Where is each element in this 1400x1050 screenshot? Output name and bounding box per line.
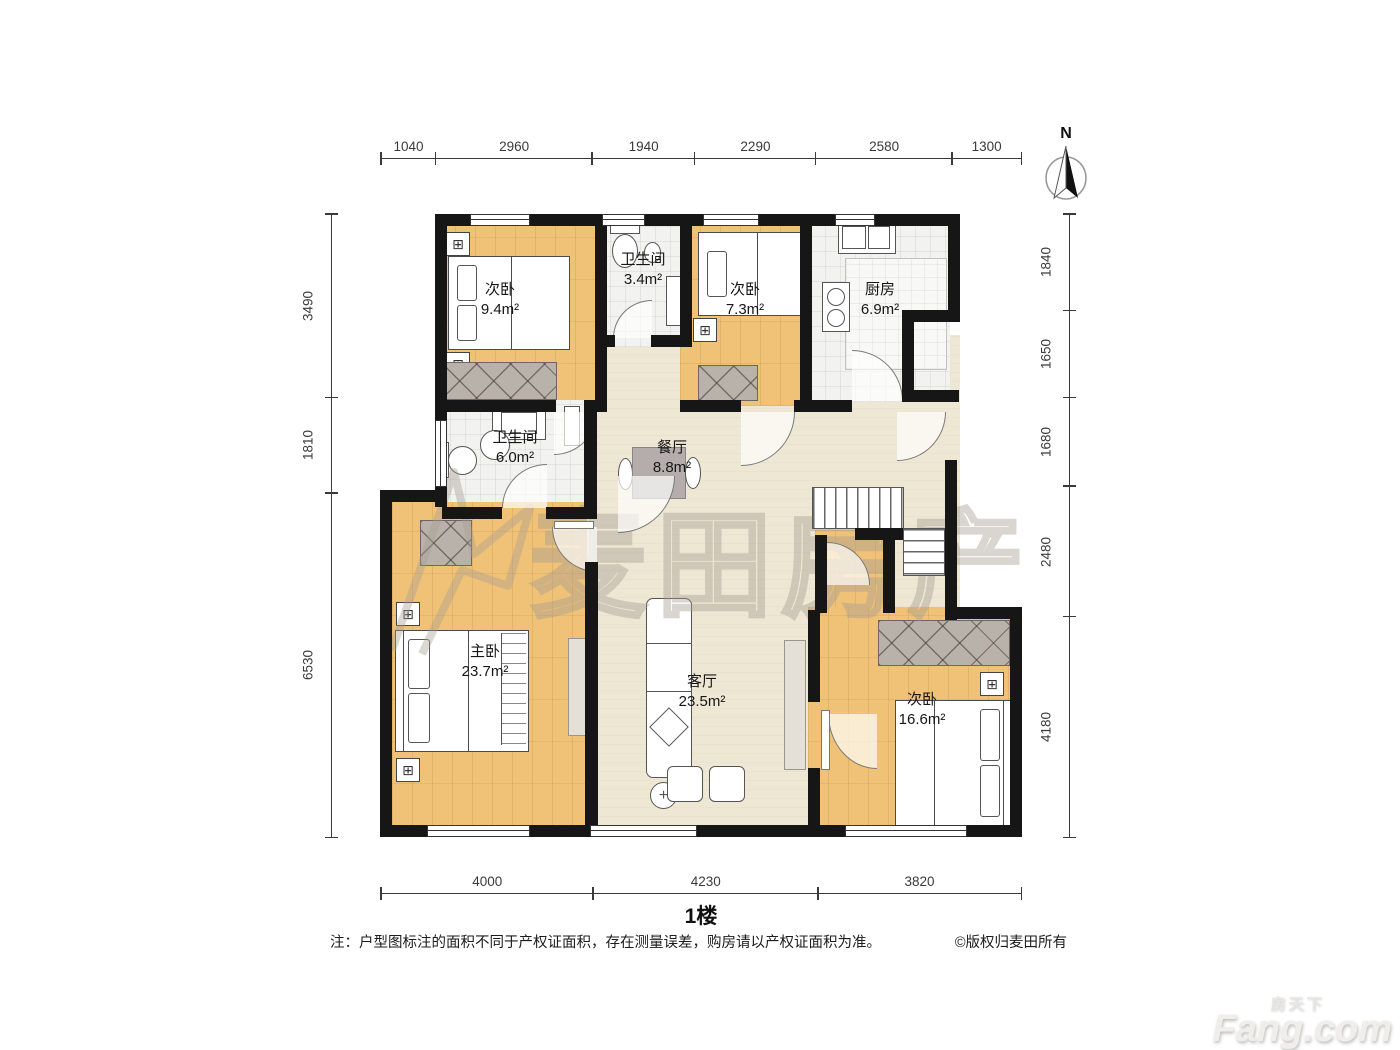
dim-segment: 4180 [1069,617,1070,837]
dim-label: 6530 [301,650,316,680]
room-area: 16.6m² [899,710,946,730]
wall-segment [948,214,960,322]
wardrobe-icon [698,365,758,401]
wall-segment [815,535,827,613]
wall-segment [380,490,392,837]
fang-en-label: Fang.com [1213,1012,1392,1046]
window [845,825,967,837]
window [602,214,645,226]
dim-label: 1810 [301,430,316,460]
wall-segment [442,507,502,519]
wall-segment [651,335,692,347]
room-area: 8.8m² [653,458,691,478]
pillow-icon [408,693,430,743]
window [427,825,530,837]
room-name: 卫生间 [492,428,537,448]
room-label-bedroom-n: 次卧 7.3m² [695,280,795,321]
room-area: 7.3m² [726,300,764,320]
wall-segment [595,214,607,412]
room-name: 客厅 [687,672,717,692]
room-name: 餐厅 [657,438,687,458]
window [435,420,447,487]
door-leaf [554,521,594,529]
north-compass: N [1036,126,1096,210]
wall-segment [680,400,741,412]
wall-segment [1010,607,1022,837]
door-leaf [821,710,830,770]
wall-segment [800,214,812,412]
dim-label: 4000 [381,874,593,889]
wall-segment [794,400,852,412]
wall-segment [584,400,597,519]
dim-segment: 1650 [1069,311,1070,398]
dim-segment: 4000 [381,893,593,894]
room-label-kitchen: 厨房 6.9m² [830,280,930,321]
window [470,214,530,226]
wall-segment [585,562,598,826]
compass-n-label: N [1060,126,1072,142]
dim-segment: 1840 [1069,214,1070,311]
wall-segment [945,460,957,620]
dim-segment: 2960 [436,158,592,159]
sofa-pillow-icon [649,707,689,747]
nightstand-icon: ⊞ [396,758,420,782]
sofa-cushion-line [647,643,691,644]
nightstand-icon: ⊞ [693,318,717,342]
dim-label: 1040 [381,139,436,154]
dim-segment: 3490 [331,214,332,398]
room-label-bath-n: 卫生间 3.4m² [593,250,693,291]
room-name: 次卧 [907,690,937,710]
dim-label: 2480 [1039,537,1054,567]
room-name: 次卧 [485,280,515,300]
dim-segment: 1680 [1069,398,1070,486]
dim-segment: 1810 [331,398,332,493]
dim-label: 1680 [1039,427,1054,457]
coffee-table-icon [667,766,703,802]
room-area: 6.0m² [496,448,534,468]
dim-segment: 3820 [818,893,1021,894]
nightstand-icon: ⊞ [446,232,470,256]
wall-segment [913,390,959,402]
floorplan: 麦田房产 [380,210,1022,837]
wall-segment [546,507,597,519]
wall-segment [595,335,615,347]
room-name: 厨房 [865,280,895,300]
dim-segment: 1300 [952,158,1021,159]
dim-label: 4180 [1039,712,1054,742]
pillow-icon [980,765,1000,817]
floorplan-canvas: N 104029601940229025801300 400042303820 … [0,0,1400,1050]
room-name: 次卧 [730,280,760,300]
dim-segment: 1040 [381,158,436,159]
dim-segment: 2480 [1069,486,1070,617]
window [590,825,697,837]
room-label-dining: 餐厅 8.8m² [632,438,712,479]
wall-segment [902,310,914,402]
dim-label: 2960 [436,139,592,154]
room-area: 9.4m² [481,300,519,320]
window [703,214,759,226]
dim-label: 1840 [1039,247,1054,277]
floor-title: 1楼 [380,900,1022,930]
room-name: 卫生间 [620,250,665,270]
room-label-living: 客厅 23.5m² [652,672,752,713]
dim-segment: 1940 [592,158,695,159]
dim-label: 3490 [301,291,316,321]
tv-bench-icon [784,640,806,770]
wall-segment [808,768,820,826]
coffee-table-icon [709,766,745,802]
room-area: 3.4m² [624,270,662,290]
room-name: 主卧 [470,642,500,662]
fang-watermark: 房天下 Fang.com [1213,998,1392,1046]
dim-label: 3820 [818,874,1021,889]
wall-segment [808,610,820,702]
wardrobe-icon [442,362,557,400]
room-area: 6.9m² [861,300,899,320]
room-area: 23.7m² [462,662,509,682]
compass-needle-icon [1038,142,1094,206]
room-label-bedroom-se: 次卧 16.6m² [872,690,972,731]
room-label-bedroom-nw: 次卧 9.4m² [450,280,550,321]
footer-note-row: 注：户型图标注的面积不同于产权证面积，存在测量误差，购房请以产权证面积为准。 ©… [330,931,1067,952]
dim-segment: 2290 [695,158,816,159]
disclaimer-note: 注：户型图标注的面积不同于产权证面积，存在测量误差，购房请以产权证面积为准。 [330,931,881,952]
sink-basin [868,226,890,249]
sink-basin [842,226,866,249]
copyright-note: ©版权归麦田所有 [955,931,1067,952]
room-area: 23.5m² [679,692,726,712]
pillow-icon [980,709,1000,761]
wall-segment [435,400,556,412]
dim-label: 1940 [592,139,695,154]
dim-label: 2580 [816,139,952,154]
room-label-bath-w: 卫生间 6.0m² [465,428,565,469]
room-label-master: 主卧 23.7m² [435,642,535,683]
dim-segment: 6530 [331,493,332,837]
kitchen-sink-icon [838,222,896,254]
stairs-icon [903,528,945,576]
dim-segment: 4230 [593,893,818,894]
wall-segment [883,533,895,613]
dim-segment: 2580 [816,158,952,159]
stairs-icon [812,487,904,529]
dim-label: 2290 [695,139,816,154]
dim-label: 1650 [1039,339,1054,369]
window [835,214,875,226]
dim-label: 1300 [952,139,1021,154]
wall-segment [855,528,903,540]
nightstand-icon: ⊞ [980,672,1004,696]
dim-label: 4230 [593,874,818,889]
